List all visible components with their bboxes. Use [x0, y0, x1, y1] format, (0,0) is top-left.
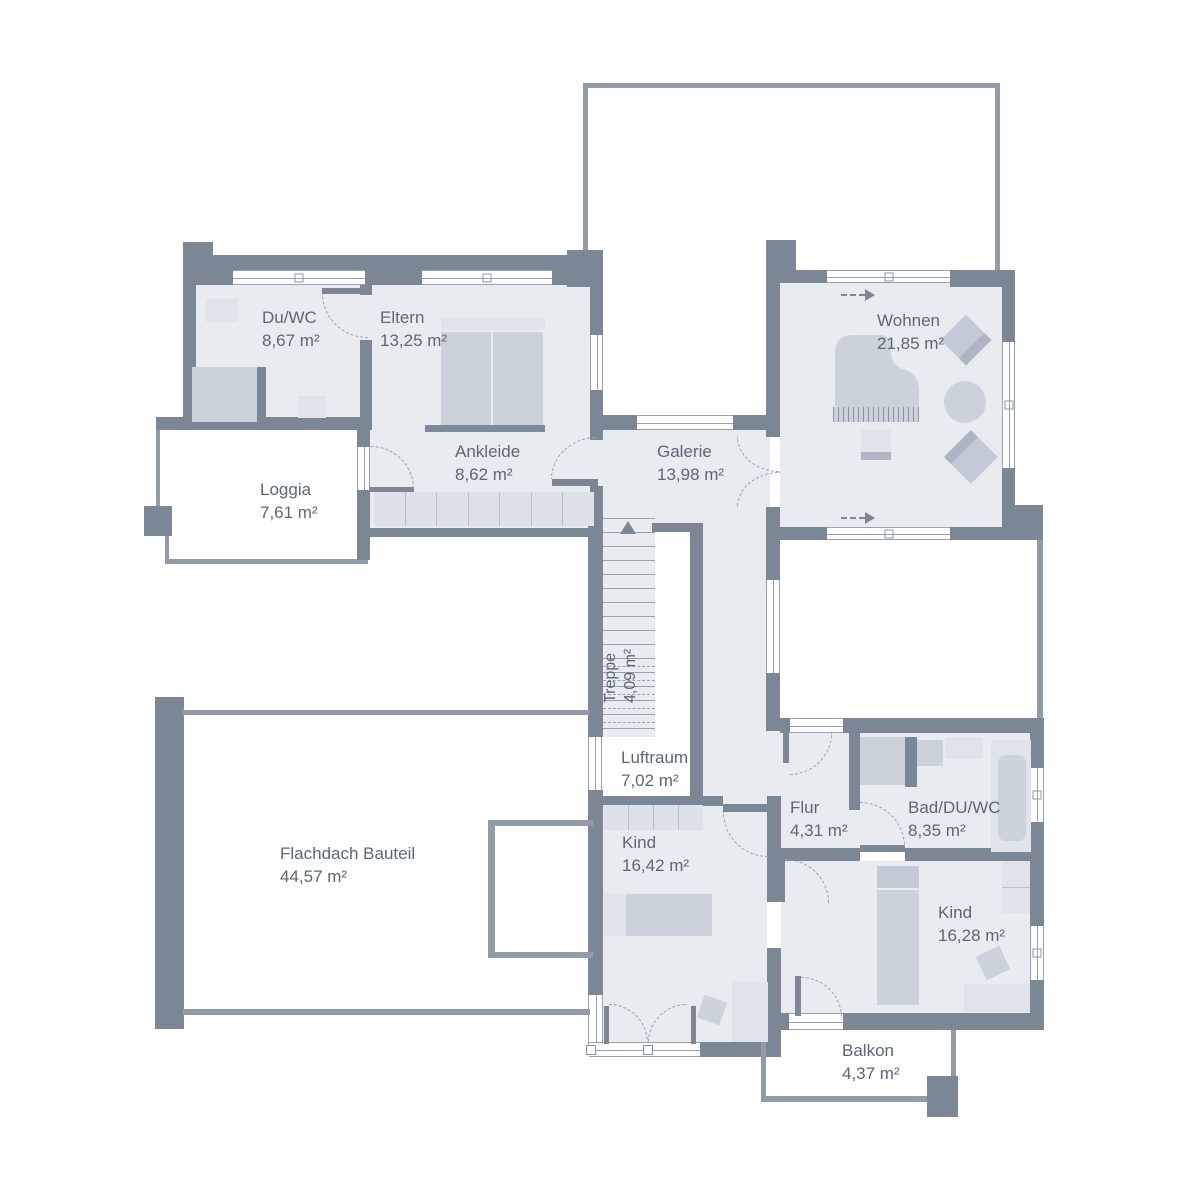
wall-pillar	[927, 1076, 958, 1117]
window-mullion	[884, 529, 893, 538]
bed	[626, 894, 712, 936]
wall-segment	[766, 527, 827, 540]
room-name: Flachdach Bauteil	[280, 842, 415, 865]
room-label-flur: Flur 4,31 m²	[790, 796, 848, 842]
toilet	[298, 396, 326, 418]
bed-headboard	[441, 318, 545, 330]
room-name: Ankleide	[455, 440, 520, 463]
room-label-treppe: Treppe 4,09 m²	[601, 649, 641, 703]
window-mullion	[1033, 791, 1042, 800]
wall-segment	[603, 415, 637, 430]
room-area: 4,37 m²	[842, 1062, 900, 1085]
shower-partition	[905, 737, 917, 787]
wall-segment	[600, 796, 703, 805]
room-area: 7,61 m²	[260, 501, 318, 524]
balcony-outline	[951, 1030, 956, 1079]
stair-direction-arrow	[620, 521, 636, 534]
wall-segment	[183, 255, 603, 270]
desk	[964, 984, 1030, 1012]
wall-segment	[767, 806, 781, 902]
room-area: 13,25 m²	[380, 329, 447, 352]
room-label-bad: Bad/DU/WC 8,35 m²	[908, 796, 1001, 842]
wall-segment	[1030, 822, 1044, 926]
room-name: Kind	[938, 901, 1005, 924]
wall-segment	[780, 718, 790, 733]
window	[1030, 768, 1044, 822]
loggia-thin-wall	[156, 430, 160, 508]
round-table	[944, 381, 986, 423]
room-area: 16,28 m²	[938, 924, 1005, 947]
roof-outline	[995, 83, 1000, 273]
window	[827, 527, 950, 540]
window	[637, 415, 733, 430]
wall-segment	[590, 390, 603, 440]
window-frame-post	[586, 1045, 596, 1055]
wall-segment	[767, 796, 781, 806]
room-label-ankleide: Ankleide 8,62 m²	[455, 440, 520, 486]
room-name: Treppe	[601, 649, 621, 703]
bed-footboard	[425, 425, 545, 432]
wall-segment	[1002, 283, 1015, 342]
bed-pillow	[604, 894, 626, 936]
bathtub-inner	[998, 755, 1026, 841]
wall-segment	[1030, 718, 1044, 768]
stair-dashed-tread	[603, 722, 655, 723]
wall-segment	[652, 523, 703, 532]
wall-segment	[766, 507, 780, 580]
sliding-direction-dashes	[841, 294, 865, 296]
window	[1002, 342, 1015, 468]
room-name: Flur	[790, 796, 848, 819]
room-name: Eltern	[380, 306, 447, 329]
void-thin-wall	[1037, 540, 1043, 720]
room-area: 16,42 m²	[622, 854, 689, 877]
room-name: Luftraum	[621, 746, 688, 769]
room-label-loggia: Loggia 7,61 m²	[260, 478, 318, 524]
loggia-thin-wall	[165, 559, 368, 564]
window	[1030, 926, 1044, 980]
flat-roof-notch	[488, 952, 593, 958]
window-frame-post	[643, 1045, 653, 1055]
window	[588, 995, 603, 1047]
shower	[192, 367, 257, 422]
window-mullion	[884, 272, 893, 281]
sliding-direction-dashes	[841, 517, 865, 519]
room-label-du-wc: Du/WC 8,67 m²	[262, 306, 320, 352]
wall-segment	[766, 270, 827, 283]
wall-segment	[360, 340, 372, 417]
room-area: 7,02 m²	[621, 769, 688, 792]
toilet	[917, 740, 943, 766]
stair-dashed-tread	[603, 708, 655, 709]
room-label-galerie: Galerie 13,98 m²	[657, 440, 724, 486]
window	[233, 270, 365, 285]
wall-pillar	[144, 506, 172, 536]
piano-keyboard	[833, 407, 919, 422]
room-label-flachdach: Flachdach Bauteil 44,57 m²	[280, 842, 415, 888]
room-name: Kind	[622, 831, 689, 854]
wall-segment	[849, 733, 860, 810]
shower-partition	[257, 367, 266, 422]
sliding-direction-arrow	[865, 512, 875, 524]
staircase	[603, 518, 655, 738]
room-label-eltern: Eltern 13,25 m²	[380, 306, 447, 352]
room-area: 8,62 m²	[455, 463, 520, 486]
double-bed	[493, 332, 543, 425]
wall-segment	[588, 518, 603, 737]
wall-segment	[700, 1042, 781, 1057]
sliding-direction-arrow	[865, 289, 875, 301]
window-mullion	[295, 273, 304, 282]
room-name: Balkon	[842, 1039, 900, 1062]
window-mullion	[483, 273, 492, 282]
wall-segment	[843, 718, 1044, 733]
air-space	[655, 532, 690, 738]
room-area: 4,09 m²	[621, 649, 641, 703]
room-fill	[703, 530, 766, 731]
wall-segment	[368, 528, 603, 537]
window	[588, 737, 602, 790]
roof-outline	[583, 83, 1000, 88]
balcony-outline	[761, 1096, 933, 1102]
shelf	[1002, 861, 1030, 913]
room-area: 21,85 m²	[877, 332, 944, 355]
wardrobe	[374, 492, 594, 526]
terrace-door-glazing	[790, 718, 843, 733]
wall-segment	[690, 530, 703, 797]
wall-segment	[357, 490, 370, 560]
flat-roof-wall	[155, 697, 184, 1029]
air-space-void	[780, 540, 1037, 718]
room-label-kind-2: Kind 16,28 m²	[938, 901, 1005, 947]
room-area: 13,98 m²	[657, 463, 724, 486]
room-name: Galerie	[657, 440, 724, 463]
room-area: 4,31 m²	[790, 819, 848, 842]
washbasin	[206, 298, 238, 322]
bed-pillow	[877, 866, 919, 888]
room-name: Du/WC	[262, 306, 320, 329]
wall-segment	[357, 430, 370, 447]
room-name: Bad/DU/WC	[908, 796, 1001, 819]
door-leaf	[691, 1006, 696, 1044]
roof-outline	[583, 83, 588, 264]
wardrobe	[604, 805, 703, 830]
window-mullion	[1033, 949, 1042, 958]
loggia-door-glazing	[357, 447, 370, 490]
bed	[877, 890, 919, 1005]
side-table	[861, 430, 891, 460]
door-leaf	[723, 804, 767, 812]
washbasin	[945, 737, 983, 759]
floor-plan: Du/WC 8,67 m² Eltern 13,25 m² Ankleide 8…	[0, 0, 1200, 1200]
room-label-wohnen: Wohnen 21,85 m²	[877, 309, 944, 355]
door-leaf	[552, 479, 598, 486]
room-area: 8,35 m²	[908, 819, 1001, 842]
double-bed	[441, 332, 491, 425]
flat-roof-notch	[488, 820, 495, 958]
flat-roof-outline	[183, 1009, 590, 1015]
wall-segment	[843, 1013, 1044, 1030]
wall-segment	[590, 285, 603, 335]
wall-pillar	[567, 250, 603, 287]
room-area: 44,57 m²	[280, 865, 415, 888]
room-label-balkon: Balkon 4,37 m²	[842, 1039, 900, 1085]
room-area: 8,67 m²	[262, 329, 320, 352]
room-label-luftraum: Luftraum 7,02 m²	[621, 746, 688, 792]
flat-roof-notch	[488, 820, 593, 826]
flat-roof-outline	[183, 710, 590, 715]
window	[766, 580, 780, 673]
room-name: Wohnen	[877, 309, 944, 332]
desk	[732, 982, 768, 1042]
wall-segment	[766, 673, 780, 731]
room-label-kind-1: Kind 16,42 m²	[622, 831, 689, 877]
room-name: Loggia	[260, 478, 318, 501]
window	[422, 270, 552, 285]
window	[590, 335, 603, 390]
window-mullion	[1004, 401, 1013, 410]
wall-segment	[767, 1013, 789, 1030]
wall-segment	[1002, 505, 1043, 540]
wall-pillar	[183, 242, 213, 272]
wall-segment	[365, 270, 422, 285]
window	[827, 270, 950, 283]
wall-segment	[703, 796, 723, 806]
shower	[860, 737, 905, 785]
